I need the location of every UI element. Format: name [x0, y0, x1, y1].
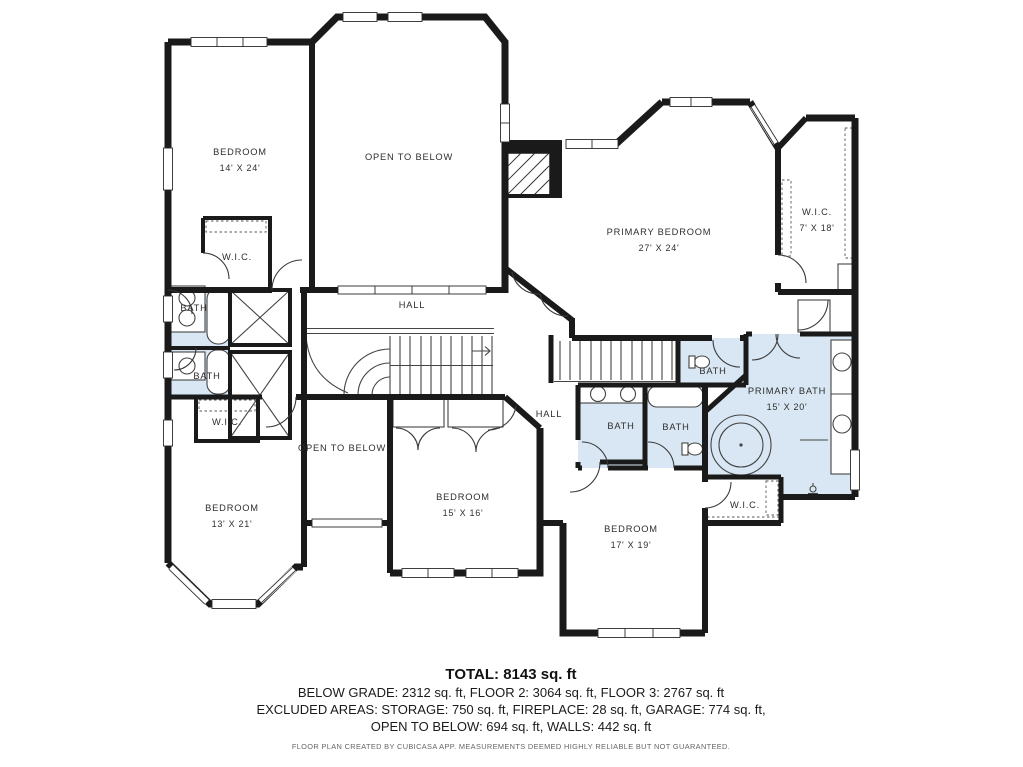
room-dims-primary-bath: 15' X 20': [767, 402, 808, 412]
stair-direction-arrow: [472, 347, 490, 356]
room-label-hall-middle: HALL: [536, 409, 562, 419]
room-dims-bedroom-s-middle: 15' X 16': [443, 508, 484, 518]
excluded-areas-text: EXCLUDED AREAS: STORAGE: 750 sq. ft, FIR…: [256, 702, 765, 717]
floor-plan-page: BEDROOM 14' X 24' OPEN TO BELOW PRIMARY …: [0, 0, 1023, 767]
room-label-hall-top: HALL: [399, 300, 425, 310]
room-label-wic-se: W.I.C.: [730, 500, 760, 510]
room-label-bath-middle-right: BATH: [662, 422, 689, 432]
bath-fill-top: [678, 338, 746, 385]
room-label-bedroom-sw: BEDROOM: [205, 503, 259, 513]
room-label-bath-west-1: BATH: [180, 303, 207, 313]
room-label-open-to-below-middle: OPEN TO BELOW: [298, 443, 386, 453]
room-label-bath-top: BATH: [699, 366, 726, 376]
closet-box: [448, 399, 503, 427]
bathtub-icon: [648, 386, 703, 407]
room-label-bedroom-s-middle: BEDROOM: [436, 492, 490, 502]
area-summary: TOTAL: 8143 sq. ft BELOW GRADE: 2312 sq.…: [256, 666, 765, 751]
room-label-wic-west-lower: W.I.C.: [212, 417, 242, 427]
shower-icon: [798, 300, 830, 332]
closet-rod: [199, 400, 255, 411]
disclaimer-text: FLOOR PLAN CREATED BY CUBICASA APP. MEAS…: [292, 742, 730, 751]
fireplace: [505, 140, 562, 196]
total-area-text: TOTAL: 8143 sq. ft: [445, 666, 576, 683]
tub-drain: [739, 443, 742, 446]
room-label-primary-bedroom: PRIMARY BEDROOM: [607, 227, 712, 237]
room-label-bedroom-nw: BEDROOM: [213, 147, 267, 157]
room-label-wic-east: W.I.C.: [802, 207, 832, 217]
room-dims-bedroom-nw: 14' X 24': [220, 163, 261, 173]
room-label-open-to-below-top: OPEN TO BELOW: [365, 152, 453, 162]
room-label-wic-west-upper: W.I.C.: [222, 252, 252, 262]
stair-treads: [344, 336, 493, 395]
toilet-icon: [688, 443, 703, 455]
bathtub-icon: [207, 288, 230, 344]
floor-areas-text: BELOW GRADE: 2312 sq. ft, FLOOR 2: 3064 …: [298, 685, 725, 700]
bifold-door-arcs: [396, 428, 500, 452]
room-dims-primary-bedroom: 27' X 24': [639, 243, 680, 253]
closet-rod: [766, 481, 778, 515]
upper-staircase-treads: [554, 341, 676, 382]
floor-plan-canvas: BEDROOM 14' X 24' OPEN TO BELOW PRIMARY …: [0, 0, 1023, 767]
vanity-counter: [580, 386, 644, 403]
room-dims-bedroom-sw: 13' X 21': [212, 519, 253, 529]
toilet-tank: [682, 443, 688, 455]
room-dims-wic-east: 7' X 18': [799, 223, 834, 233]
room-label-bath-middle-left: BATH: [607, 421, 634, 431]
closet-box: [393, 399, 444, 427]
closet-rod: [206, 221, 266, 232]
room-label-primary-bath: PRIMARY BATH: [748, 386, 826, 396]
toilet-tank: [689, 356, 695, 368]
main-staircase: [304, 329, 494, 396]
excluded-areas-text-2: OPEN TO BELOW: 694 sq. ft, WALLS: 442 sq…: [371, 719, 652, 734]
room-dims-bedroom-se: 17' X 19': [611, 540, 652, 550]
closet-rod: [782, 180, 791, 256]
room-label-bath-west-2: BATH: [193, 371, 220, 381]
room-label-bedroom-se: BEDROOM: [604, 524, 658, 534]
